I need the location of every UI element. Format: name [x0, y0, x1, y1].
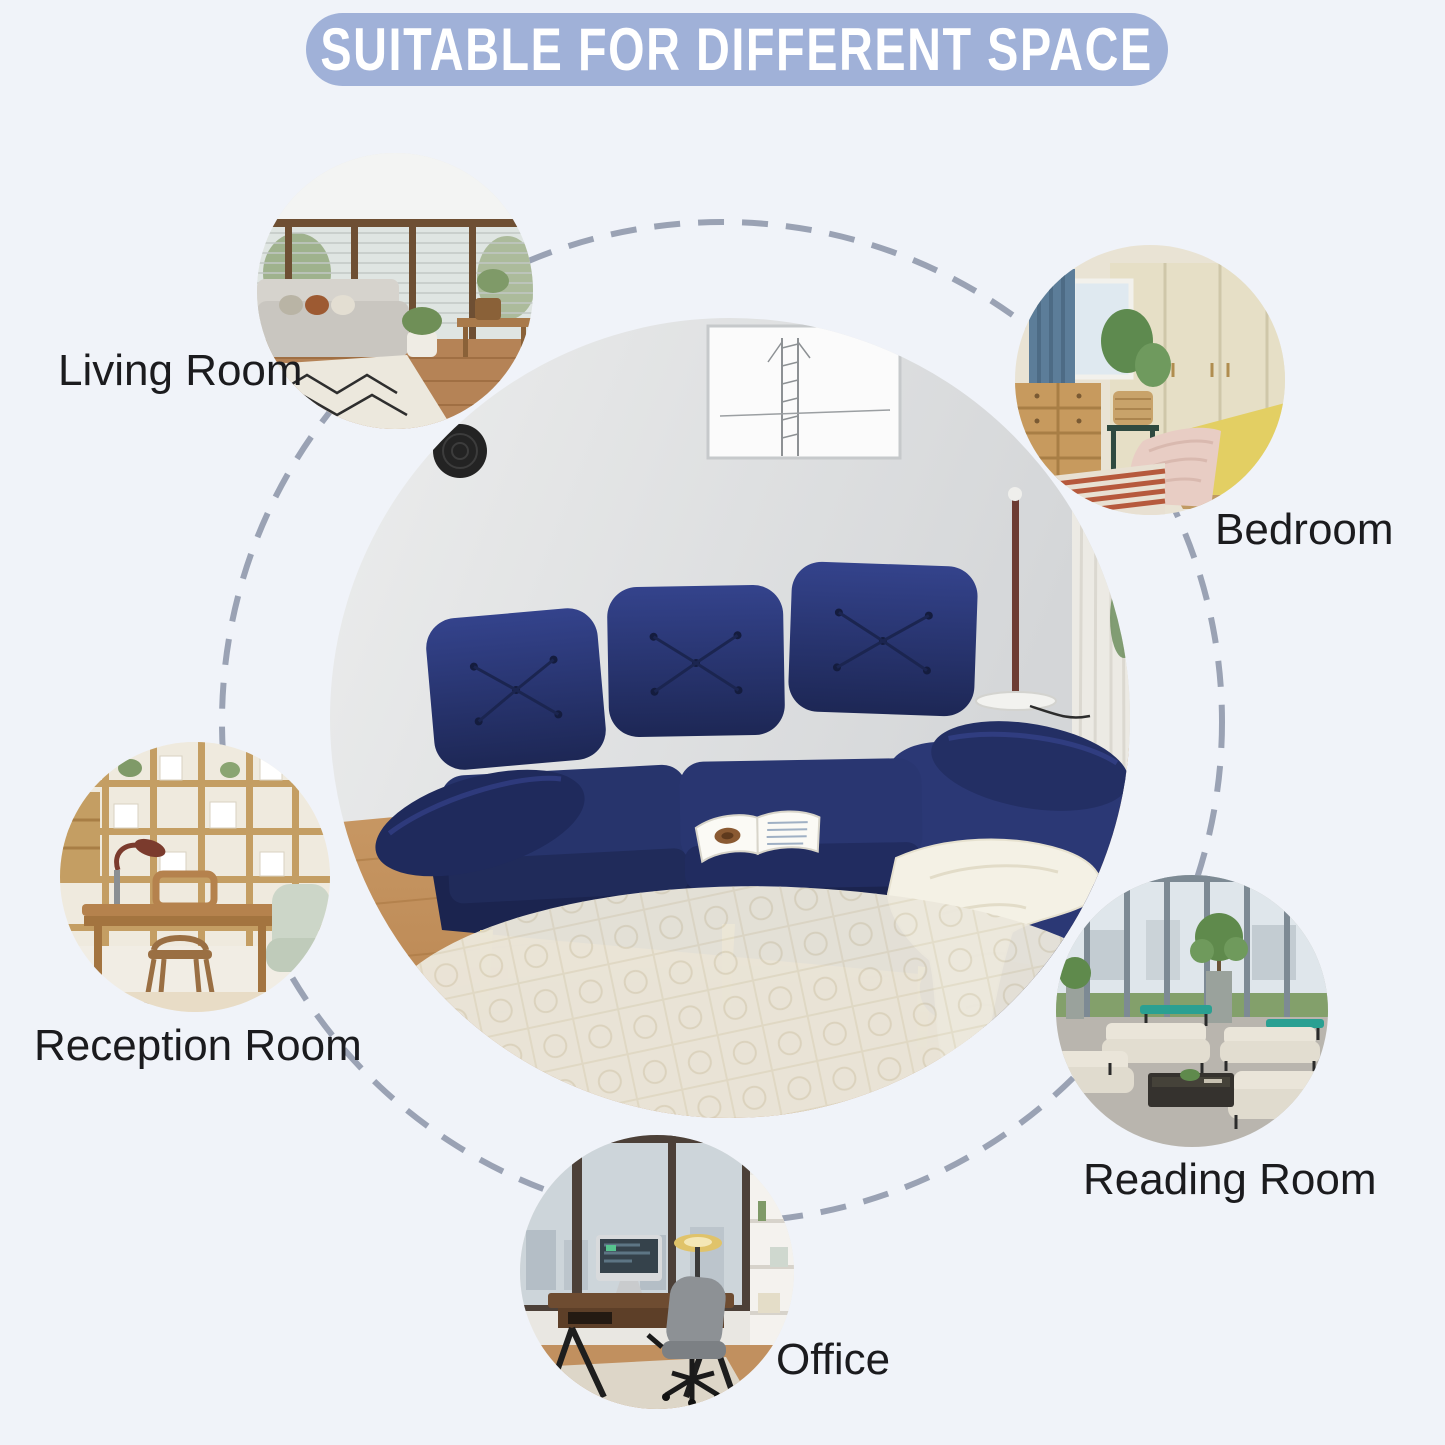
- reception-room-label: Reception Room: [34, 1022, 362, 1070]
- coffee-table: [1148, 1069, 1234, 1107]
- sofa-back-cushion-right: [787, 561, 978, 717]
- sofa-room-scene: [330, 318, 1130, 1118]
- title-banner: SUITABLE FOR DIFFERENT SPACE: [306, 13, 1168, 86]
- office-label: Office: [776, 1336, 890, 1384]
- page-title: SUITABLE FOR DIFFERENT SPACE: [321, 15, 1153, 84]
- suitable-space-infographic: SUITABLE FOR DIFFERENT SPACE: [0, 0, 1445, 1445]
- office-photo: [520, 1135, 794, 1409]
- bedroom-label: Bedroom: [1215, 506, 1394, 554]
- living-room-label: Living Room: [58, 347, 303, 395]
- sofa-back-cushion-left: [424, 606, 609, 772]
- reception-room-photo: [60, 742, 330, 1012]
- sofa-back-cushion-middle: [607, 584, 786, 737]
- reading-room-photo: [1056, 875, 1328, 1147]
- bedroom-scene: [1015, 245, 1285, 515]
- reading-room-label: Reading Room: [1083, 1156, 1377, 1204]
- reading-room-scene: [1056, 875, 1328, 1147]
- office-scene: [520, 1135, 794, 1409]
- reception-room-scene: [60, 742, 330, 1012]
- sofa-product-photo: [330, 318, 1130, 1118]
- bedroom-photo: [1015, 245, 1285, 515]
- wall-art-frame: [708, 326, 900, 458]
